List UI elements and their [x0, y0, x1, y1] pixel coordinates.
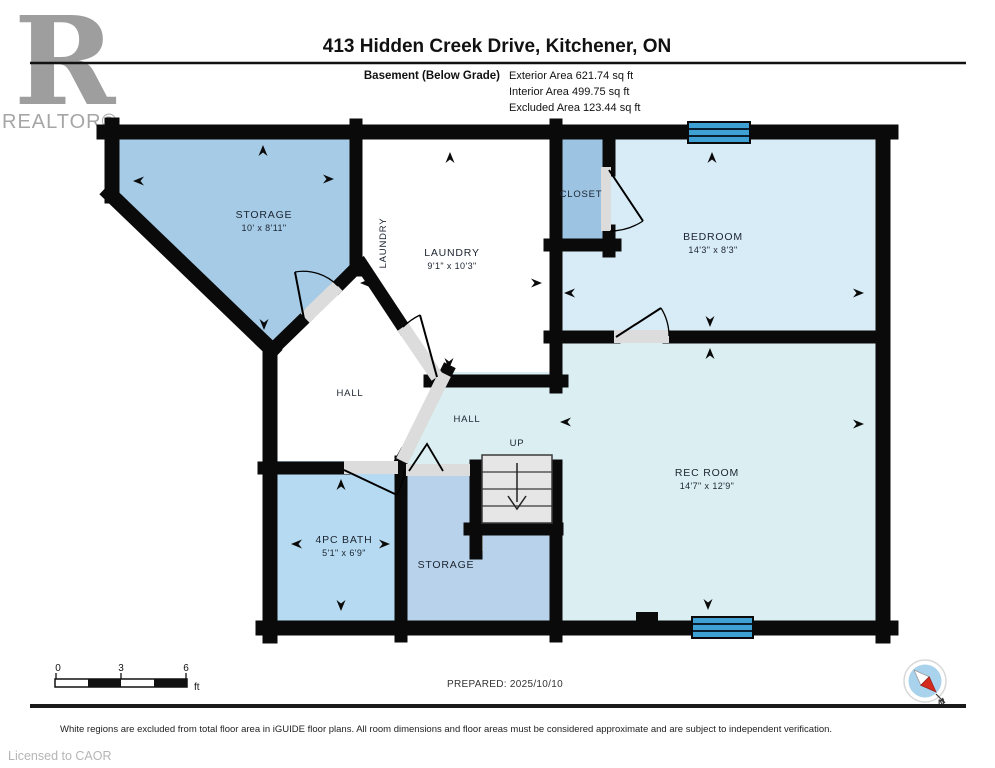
- label-laundry: LAUNDRY: [424, 247, 480, 259]
- disclaimer-text: White regions are excluded from total fl…: [60, 724, 832, 735]
- opening-bath: [344, 461, 398, 474]
- label-bath-dims: 5'1" x 6'9": [322, 548, 366, 558]
- label-storage-top: STORAGE: [236, 209, 293, 221]
- scale-tick-6: 6: [183, 663, 189, 674]
- label-storage-top-dims: 10' x 8'11": [242, 223, 287, 233]
- label-rec-room-dims: 14'7" x 12'9": [680, 481, 735, 491]
- prepared-date: PREPARED: 2025/10/10: [447, 679, 563, 690]
- floor-label: Basement (Below Grade): [364, 70, 500, 82]
- page-title: 413 Hidden Creek Drive, Kitchener, ON: [323, 36, 671, 57]
- scale-tick-0: 0: [55, 663, 61, 674]
- wall-stub: [636, 612, 658, 622]
- label-storage-bottom: STORAGE: [418, 559, 475, 571]
- label-hall-west: HALL: [337, 388, 364, 399]
- interior-area: Interior Area 499.75 sq ft: [509, 86, 629, 98]
- scale-unit: ft: [194, 682, 200, 693]
- floorplan-canvas: R REALTOR® 413 Hidden Creek Drive, Kitch…: [0, 0, 995, 768]
- label-bedroom: BEDROOM: [683, 231, 743, 243]
- label-laundry-side: LAUNDRY: [378, 218, 389, 269]
- label-closet: CLOSET: [560, 189, 603, 200]
- scale-tick-3: 3: [118, 663, 124, 674]
- license-text: Licensed to CAOR: [8, 749, 112, 763]
- window-bedroom: [688, 122, 750, 143]
- floorplan-page: R REALTOR® 413 Hidden Creek Drive, Kitch…: [0, 0, 995, 768]
- label-bedroom-dims: 14'3" x 8'3": [688, 245, 737, 255]
- opening-storage-bottom: [406, 464, 470, 476]
- label-bath: 4PC BATH: [316, 534, 373, 546]
- label-stairs-up: UP: [510, 438, 525, 449]
- window-rec-room: [692, 617, 753, 638]
- label-rec-room: REC ROOM: [675, 467, 739, 479]
- opening-closet: [601, 167, 611, 231]
- exterior-area: Exterior Area 621.74 sq ft: [509, 70, 633, 82]
- stairs: [482, 455, 552, 523]
- excluded-area: Excluded Area 123.44 sq ft: [509, 102, 640, 114]
- label-hall-east: HALL: [454, 414, 481, 425]
- label-laundry-dims: 9'1" x 10'3": [427, 261, 476, 271]
